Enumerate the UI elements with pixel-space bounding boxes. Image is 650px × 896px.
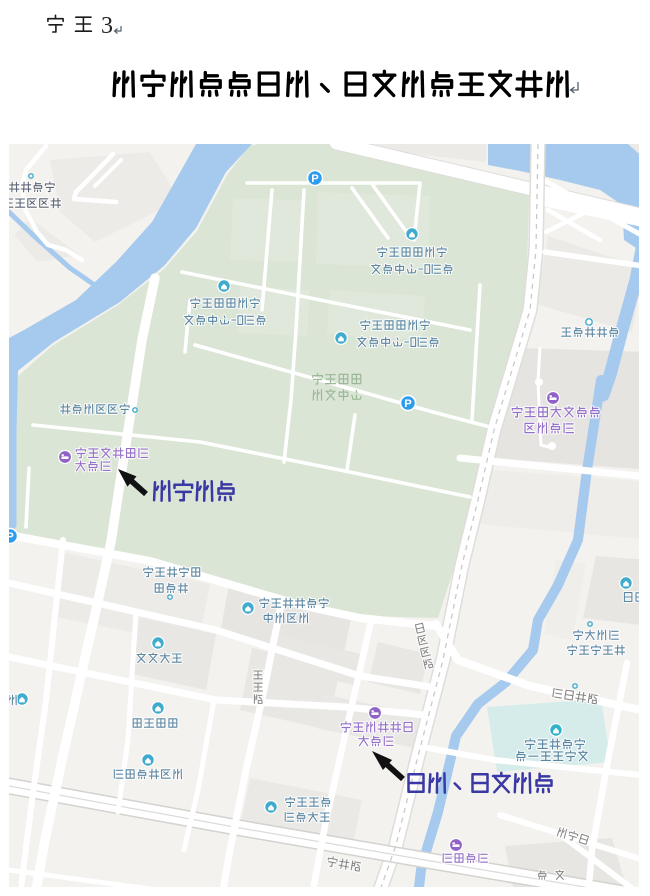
- svg-text:P: P: [6, 531, 14, 543]
- svg-text:3: 3: [101, 13, 113, 39]
- svg-text:P: P: [404, 398, 412, 410]
- svg-text:P: P: [311, 173, 319, 185]
